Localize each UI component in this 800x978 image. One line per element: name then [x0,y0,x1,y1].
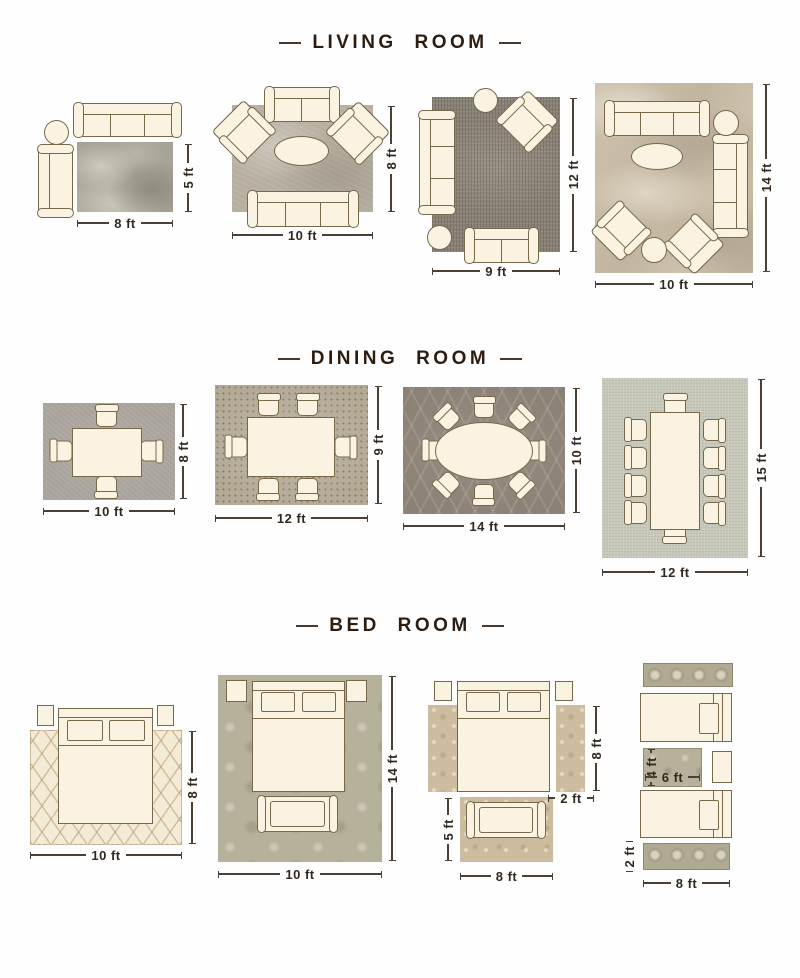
header-dash [500,358,522,360]
dining-chair [258,478,279,498]
bed [252,681,345,792]
dim-line [377,460,378,504]
dim-line [760,379,761,449]
dim-line [460,875,491,876]
dim-line [182,404,183,437]
dining-chair [627,502,647,524]
section-title: BED ROOM [329,615,471,637]
dim-line [595,706,596,734]
dim-line [512,270,560,271]
dimension-runner-width: 2 ft [548,791,594,805]
dim-line [595,283,654,284]
dimension-width: 10 ft [595,277,753,291]
dim-text: 8 ft [109,216,141,231]
bench [259,796,336,832]
dim-line [645,776,657,777]
dim-line [311,517,368,518]
dining-chair [703,419,723,441]
dim-text: 6 ft [657,770,689,785]
nightstand [555,681,573,701]
dining-chair [228,437,248,458]
oval-coffee-table [631,143,683,170]
dim-line [215,517,272,518]
dim-text: 12 ft [566,156,581,193]
dim-line [575,388,576,432]
dimension-height: 14 ft [385,676,399,861]
dining-chair [703,447,723,469]
bed [58,708,153,824]
dimension-width: 10 ft [218,867,382,881]
dining-chair [474,399,494,418]
round-side-table [44,120,69,145]
sofa [713,136,748,236]
section-title: DINING ROOM [311,348,489,370]
pillow [466,692,500,712]
dim-line [187,144,188,163]
dining-chair [627,419,647,441]
nightstand [157,705,174,726]
dining-table [247,417,335,477]
dim-line [765,197,766,272]
dim-text: 2 ft [555,791,587,806]
dim-line [695,571,748,572]
dining-table [650,412,700,530]
bed-room-header: BED ROOM [0,615,800,637]
dimension-runner-height: 2 ft [622,841,636,872]
dining-chair [297,478,318,498]
oval-dining-table [435,422,533,480]
sofa-arm-right [171,102,182,138]
dim-text: 15 ft [754,449,769,486]
dimension-height: 5 ft [441,798,455,861]
dim-line [432,270,480,271]
dimension-width: 10 ft [232,228,373,242]
dimension-height: 10 ft [569,388,583,513]
header-dash [499,42,521,44]
pillow [699,800,719,830]
dim-line [688,776,700,777]
pillow [67,720,103,741]
bench-arm-left [257,795,266,833]
dim-text: 2 ft [622,842,637,872]
section-title: LIVING ROOM [312,32,487,54]
dim-text: 10 ft [654,277,693,292]
living-room-header: LIVING ROOM [0,32,800,54]
bench-arm-left [466,801,475,839]
dim-line [447,798,448,815]
bench-arm-right [537,801,546,839]
header-dash [482,625,504,627]
round-side-table [641,237,667,263]
dim-line [702,882,730,883]
nightstand [37,705,54,726]
dim-line [322,234,373,235]
sofa-arm-top [418,110,456,120]
dining-chair [96,407,117,427]
dim-text: 10 ft [280,867,319,882]
bed [457,681,550,792]
rug-size-guide-infographic: LIVING ROOM 8 ft 5 ft 8 ft 10 ft [0,0,800,978]
dimension-height: 15 ft [754,379,768,557]
dimension-height: 9 ft [371,386,385,504]
nightstand [346,680,367,702]
dimension-height: 5 ft [181,144,195,212]
dimension-mid-rug-width: 6 ft [645,770,700,784]
dim-line [191,731,192,773]
sofa-arm-top [37,144,74,154]
dim-text: 8 ft [185,773,200,803]
bench [468,802,544,838]
dining-table [72,428,142,477]
bench-arm-right [329,795,338,833]
dining-chair [258,396,279,416]
dim-line [391,787,392,861]
dining-room-header: DINING ROOM [0,348,800,370]
pillow [699,703,719,734]
sofa-arm-right [348,190,359,228]
dimension-width: 12 ft [602,565,748,579]
dim-line [572,194,573,252]
nightstand [712,751,732,783]
dim-text: 8 ft [384,144,399,174]
dim-line [232,234,283,235]
pillow [109,720,145,741]
dim-text: 8 ft [491,869,523,884]
pillow [302,692,336,712]
header-dash [278,358,300,360]
dim-line [320,873,382,874]
dim-text: 14 ft [385,750,400,787]
dim-text: 10 ft [86,848,125,863]
sofa-arm-top [712,134,749,144]
dim-text: 9 ft [371,430,386,460]
dimension-width: 8 ft [77,216,173,230]
dining-chair [703,475,723,497]
nightstand [226,680,247,702]
dim-line [30,854,86,855]
dim-text: 12 ft [655,565,694,580]
sofa-arm-right [528,227,539,264]
dining-chair [297,396,318,416]
dimension-height: 8 ft [176,404,190,499]
runner-rug-left [428,705,457,792]
dining-chair [703,502,723,524]
twin-bed [640,693,732,742]
dining-chair [627,475,647,497]
dimension-width: 8 ft [460,869,553,883]
sofa-arm-bottom [418,205,456,215]
sofa-arm-bottom [37,208,74,218]
twin-bed [640,790,732,838]
dimension-width: 14 ft [403,519,565,533]
sofa [606,101,708,136]
dim-text: 8 ft [671,876,703,891]
pillow [507,692,541,712]
header-dash [296,625,318,627]
dim-text: 5 ft [441,815,456,845]
dim-text: 14 ft [464,519,503,534]
pillow [261,692,295,712]
dim-text: 12 ft [272,511,311,526]
dim-line [575,469,576,513]
dim-line [548,797,555,798]
dim-text: 8 ft [176,437,191,467]
sofa [249,191,357,227]
dimension-height: 14 ft [759,84,773,272]
sofa-arm-left [604,100,615,137]
dimension-runner-length: 8 ft [589,706,603,791]
header-dash [279,42,301,44]
dim-line [126,854,182,855]
nightstand [434,681,452,701]
round-side-table [473,88,498,113]
sofa [75,103,180,137]
dimension-height: 8 ft [185,731,199,844]
sofa [466,228,537,263]
dim-line [602,571,655,572]
dim-text: 10 ft [283,228,322,243]
dim-line [504,525,565,526]
round-side-table [427,225,452,250]
dim-line [694,283,753,284]
dim-line [595,763,596,791]
dim-line [191,802,192,844]
dining-chair [141,441,161,462]
dim-line [129,510,175,511]
dim-line [522,875,553,876]
dim-line [628,871,629,872]
runner-rug-top [643,663,733,687]
dim-text: 10 ft [569,432,584,469]
dining-chair [474,484,494,503]
dim-line [77,222,109,223]
rug-8x5 [77,142,173,212]
dining-chair [96,476,117,496]
dim-line [141,222,173,223]
dining-chair [53,441,73,462]
dim-line [572,98,573,156]
dim-line [587,797,594,798]
dim-line [447,844,448,861]
dim-line [218,873,280,874]
dimension-height: 12 ft [566,98,580,252]
sofa-arm-right [699,100,710,137]
dim-line [403,525,464,526]
dim-line [643,882,671,883]
sofa-arm-left [73,102,84,138]
sofa [419,112,455,213]
dim-line [765,84,766,159]
dim-text: 9 ft [480,264,512,279]
sofa-arm-left [247,190,258,228]
round-side-table [713,110,739,136]
dim-line [377,386,378,430]
dimension-width: 10 ft [43,504,175,518]
sofa-arm-left [464,227,475,264]
oval-coffee-table [274,136,329,166]
dim-line [391,676,392,750]
dim-line [390,106,391,144]
runner-rug-bottom [643,843,730,870]
dim-text: 10 ft [89,504,128,519]
loveseat [38,146,73,216]
dim-line [182,466,183,499]
dim-text: 5 ft [181,163,196,193]
sofa-arm-left [264,86,275,123]
dim-line [187,193,188,212]
dim-line [390,174,391,212]
dimension-runner-width: 8 ft [643,876,730,890]
dimension-width: 10 ft [30,848,182,862]
dim-text: 8 ft [589,734,604,764]
dim-text: 14 ft [759,159,774,196]
dimension-width: 12 ft [215,511,368,525]
dim-line [43,510,89,511]
dining-chair [335,437,355,458]
dining-chair [627,447,647,469]
runner-rug-right [556,705,585,792]
sofa [266,87,338,122]
dimension-width: 9 ft [432,264,560,278]
dim-line [760,487,761,557]
dimension-height: 8 ft [384,106,398,212]
